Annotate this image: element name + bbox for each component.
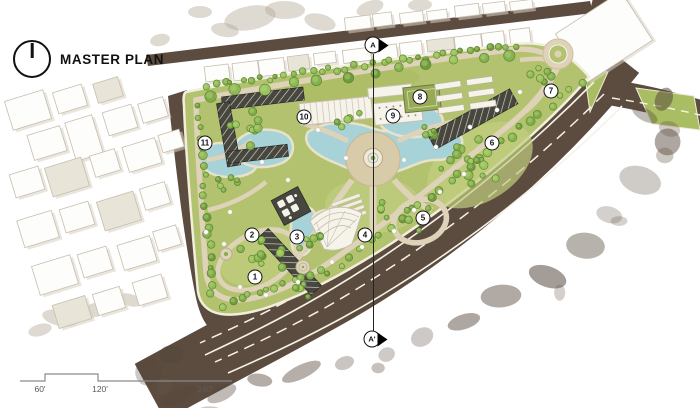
- callout-1: 1: [248, 270, 263, 285]
- callout-10: 10: [297, 110, 312, 125]
- callout-3: 3: [290, 230, 305, 245]
- scale-label: 240': [197, 384, 213, 394]
- callout-7: 7: [544, 84, 559, 99]
- callout-11: 11: [198, 136, 213, 151]
- callout-2: 2: [245, 228, 260, 243]
- roundabout-plaza: [543, 39, 573, 69]
- section-marker-A: A: [365, 37, 382, 54]
- title-block: MASTER PLAN: [13, 40, 164, 78]
- callout-8: 8: [413, 90, 428, 105]
- master-plan-canvas: MASTER PLAN 1234567891011 AA' 60'120'240…: [0, 0, 700, 408]
- callout-6: 6: [485, 136, 500, 151]
- callout-4: 4: [358, 228, 373, 243]
- section-flag-icon: [378, 333, 388, 347]
- section-flag-icon: [379, 39, 389, 53]
- north-arrow-icon: [13, 40, 51, 78]
- page-title: MASTER PLAN: [60, 52, 164, 67]
- scale-label: 120': [92, 384, 108, 394]
- section-marker-Ap: A': [364, 331, 381, 348]
- callout-5: 5: [416, 211, 431, 226]
- scale-label: 60': [34, 384, 45, 394]
- callout-9: 9: [386, 109, 401, 124]
